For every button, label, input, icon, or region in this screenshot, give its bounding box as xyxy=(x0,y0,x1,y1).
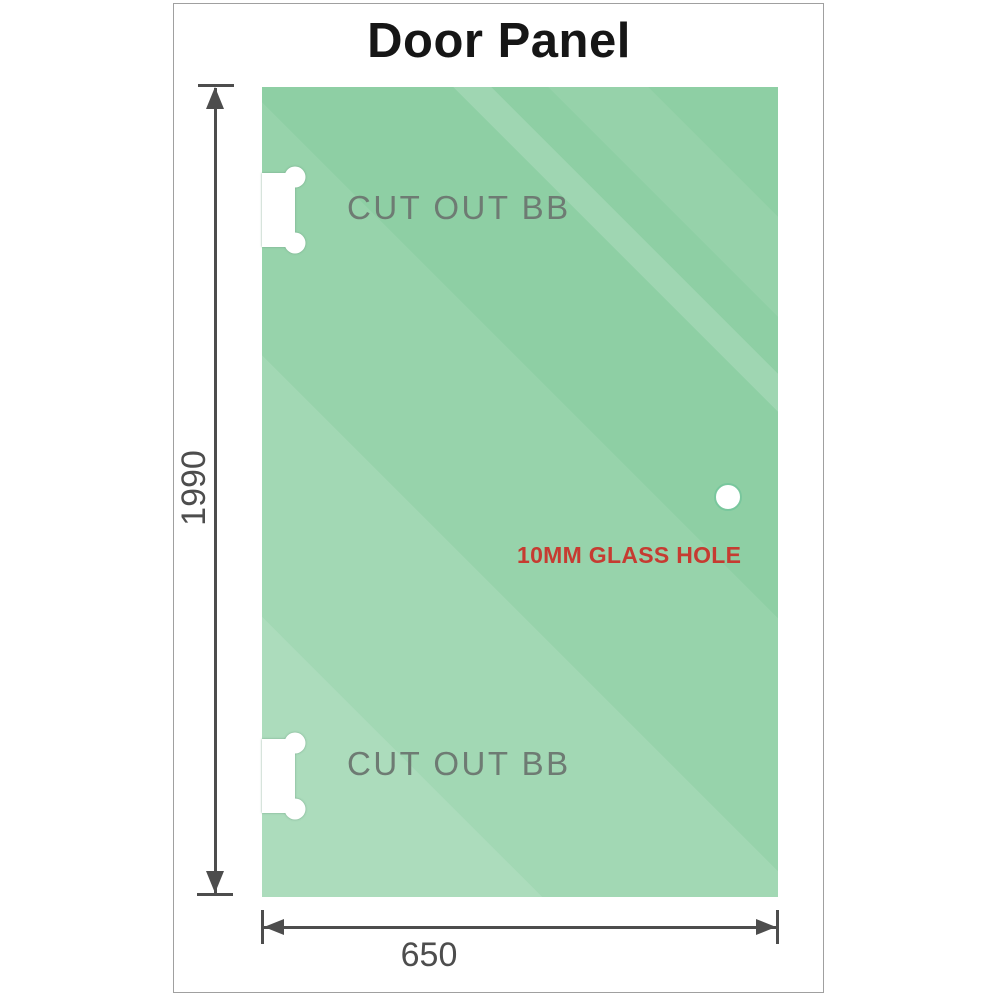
hinge-cutout-icon xyxy=(262,165,308,255)
door-panel-drawing: Door Panel CUT OUT BB CUT OUT BB 10MM GL… xyxy=(0,0,1000,1000)
page-title: Door Panel xyxy=(173,12,825,72)
hinge-cutout-icon xyxy=(262,731,308,821)
width-dimension-line xyxy=(264,926,776,929)
height-dimension-label: 1990 xyxy=(175,428,213,548)
height-dimension-line xyxy=(214,88,217,894)
right-arrowhead-icon xyxy=(756,919,776,935)
left-arrowhead-icon xyxy=(264,919,284,935)
width-dimension-label: 650 xyxy=(379,936,479,974)
cutout-label: CUT OUT BB xyxy=(347,191,607,224)
down-arrowhead-icon xyxy=(206,871,224,893)
glass-hole-icon xyxy=(714,483,742,511)
width-extent-tick-right xyxy=(776,910,779,944)
glass-hole-label: 10MM GLASS HOLE xyxy=(517,543,741,568)
up-arrowhead-icon xyxy=(206,87,224,109)
cutout-label: CUT OUT BB xyxy=(347,747,607,780)
